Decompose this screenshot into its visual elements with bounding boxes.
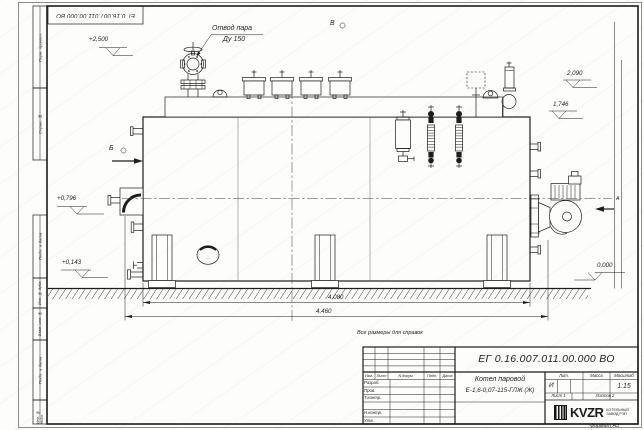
view-b-label: Б bbox=[109, 145, 114, 152]
sheets-cell: Листов 2 bbox=[572, 393, 638, 400]
burner bbox=[530, 172, 582, 238]
company-name-line2: ЗАВОД РЭП bbox=[606, 412, 627, 416]
reference-note: Все размеры для справок bbox=[357, 331, 423, 337]
steam-outlet-callout: Отвод пара bbox=[212, 25, 252, 32]
boiler-side-view bbox=[48, 22, 622, 322]
elevation-safety-valve: 2,090 bbox=[567, 71, 582, 77]
lit-value: И bbox=[545, 380, 558, 394]
elevation-top-valve: +2,500 bbox=[89, 37, 108, 43]
steam-outlet-valve bbox=[181, 42, 206, 97]
scale-value: 1:15 bbox=[610, 380, 638, 394]
col-ndokum: N докум. bbox=[388, 373, 424, 380]
view-v-label: В bbox=[330, 20, 335, 27]
scale-label: Масштаб bbox=[610, 372, 638, 380]
drum-top-deck bbox=[165, 97, 503, 117]
mass-label: Масса bbox=[583, 372, 610, 380]
top-fittings bbox=[243, 70, 352, 99]
row-tkontr: Т.контр. bbox=[364, 396, 381, 400]
frame-col-inv-podl: Инв. № подл. bbox=[33, 400, 47, 424]
col-list: Лист bbox=[375, 373, 388, 380]
lifting-lug-left bbox=[213, 90, 227, 97]
frame-col-podp-data2: Подп. и дата bbox=[33, 340, 47, 400]
col-data: Дата bbox=[440, 373, 455, 380]
dimension-overall-length: 4,460 bbox=[316, 309, 331, 315]
col-izm: Изм. bbox=[363, 373, 375, 380]
ground bbox=[48, 289, 591, 300]
col-podp: Подп. bbox=[424, 373, 440, 380]
dimension-shell-length: 4,080 bbox=[328, 295, 343, 301]
product-name-line1: Котел паровой bbox=[455, 374, 545, 385]
frame-col-vzam-inv: Взам. инв. № bbox=[33, 308, 47, 340]
elevation-low-fitting: +0,143 bbox=[62, 260, 81, 266]
steam-outlet-dn: Ду 150 bbox=[223, 36, 245, 43]
company-name: КОТЕЛЬНЫЙ ЗАВОД РЭП bbox=[606, 408, 629, 416]
safety-valve bbox=[502, 62, 516, 118]
row-nkontr: Н.контр. bbox=[364, 411, 382, 415]
row-prov: Пров. bbox=[364, 389, 375, 393]
manhole bbox=[197, 246, 219, 265]
row-utv: Утв. bbox=[364, 419, 374, 423]
frame-col-sprav: Справ. № bbox=[33, 88, 47, 160]
frame-col-perv-primen: Перв. примен. bbox=[33, 6, 47, 88]
frame-col-inv-dubl: Инв. № дубл. bbox=[33, 278, 47, 308]
frame-col-podp-data1: Подп. и дата bbox=[33, 215, 47, 278]
company-cell: KVZR КОТЕЛЬНЫЙ ЗАВОД РЭП bbox=[545, 400, 638, 424]
elevation-axis: +0,796 bbox=[57, 196, 76, 202]
kvzr-logo-icon bbox=[554, 405, 567, 420]
format-label: Формат А3 bbox=[590, 424, 619, 429]
sheet-cell: Лист 1 bbox=[545, 393, 572, 400]
elevation-ground: 0,000 bbox=[597, 263, 612, 269]
row-razrab: Разраб. bbox=[364, 381, 380, 385]
elevation-shell-top: 1,746 bbox=[553, 102, 568, 108]
view-a-label: А bbox=[616, 197, 619, 202]
lit-label: Лит. bbox=[545, 372, 583, 380]
title-doc-number: ЕГ 0.16.007.011.00.000 ВО bbox=[455, 347, 638, 372]
product-name-line2: Е-1,6-0,07-115-ГЛЖ (Ж) bbox=[455, 386, 545, 397]
drawing-sheet: ЕГ 0.16.007.011.00.000 ВО Перв. примен. … bbox=[0, 0, 644, 430]
company-abbr: KVZR bbox=[570, 406, 603, 419]
top-stamp-text: ЕГ 0.16.007.011.00.000 ВО bbox=[48, 6, 143, 24]
